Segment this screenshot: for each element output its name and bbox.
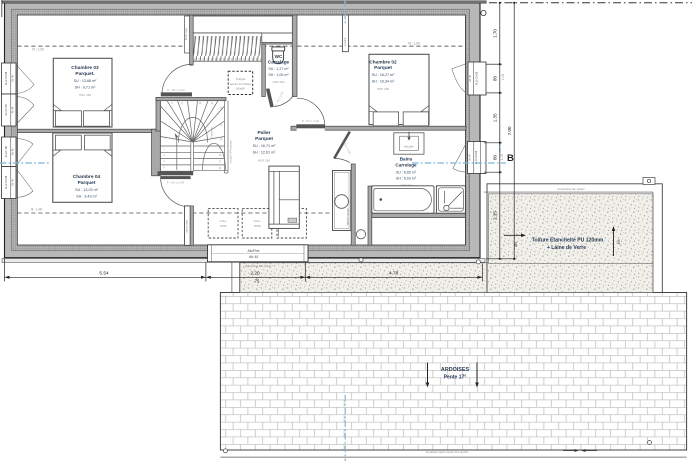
svg-text:Parquet: Parquet — [255, 136, 273, 142]
svg-text:SU : 16,71 m²: SU : 16,71 m² — [253, 144, 277, 148]
svg-text:16 marches: 16 marches — [211, 126, 214, 140]
svg-text:75: 75 — [255, 279, 260, 284]
svg-text:B: B — [507, 153, 514, 164]
svg-text:7.00: 7.00 — [507, 126, 512, 135]
svg-text:2.20: 2.20 — [250, 270, 260, 276]
svg-text:1.05: 1.05 — [500, 154, 504, 161]
svg-text:5.54: 5.54 — [99, 270, 109, 276]
svg-text:Alt: 46: Alt: 46 — [11, 148, 14, 155]
svg-text:ALU CH 06: ALU CH 06 — [4, 175, 8, 189]
svg-text:Chambre 03: Chambre 03 — [71, 65, 99, 71]
svg-text:SU : 6,65 m²: SU : 6,65 m² — [396, 170, 417, 174]
svg-text:Couvertine alu quartz: Couvertine alu quartz — [557, 187, 585, 191]
svg-text:Meuble: Meuble — [404, 145, 414, 149]
svg-text:HSP 260: HSP 260 — [79, 93, 92, 97]
svg-text:ALU F 06: ALU F 06 — [4, 104, 8, 116]
svg-text:80: 80 — [493, 76, 498, 82]
svg-text:SH : 10,34 m²: SH : 10,34 m² — [372, 80, 396, 84]
svg-text:1.05: 1.05 — [501, 74, 505, 81]
svg-text:Alt: 40: Alt: 40 — [249, 255, 259, 259]
svg-text:Vélux: Vélux — [253, 219, 261, 223]
svg-text:SU : 16,27 m²: SU : 16,27 m² — [372, 73, 396, 77]
svg-text:Porte coul.: Porte coul. — [184, 28, 188, 41]
svg-text:Trappe: Trappe — [236, 77, 246, 81]
svg-text:ht : 1,90: ht : 1,90 — [408, 42, 420, 46]
svg-text:Chambre 02: Chambre 02 — [369, 59, 397, 65]
svg-text:ALU CH 05: ALU CH 05 — [475, 71, 479, 85]
svg-text:Parquet.: Parquet. — [75, 71, 94, 77]
svg-text:80: 80 — [493, 155, 498, 161]
svg-text:60x60: 60x60 — [236, 87, 245, 91]
svg-text:Parquet: Parquet — [78, 180, 96, 186]
svg-text:ARDOISES: ARDOISES — [441, 367, 470, 373]
svg-text:Meuble vasque: Meuble vasque — [346, 208, 350, 226]
svg-text:HSP 260: HSP 260 — [377, 87, 390, 91]
svg-text:4.78: 4.78 — [389, 270, 399, 276]
svg-text:SU : 1,27 m²: SU : 1,27 m² — [268, 67, 289, 71]
svg-text:Alt: 46: Alt: 46 — [11, 75, 14, 82]
svg-text:Pente 17°: Pente 17° — [444, 375, 467, 381]
svg-text:HSP 260: HSP 260 — [258, 159, 271, 163]
svg-text:Conduit: Conduit — [344, 37, 347, 46]
svg-text:Alu/Fixe: Alu/Fixe — [248, 249, 260, 253]
svg-text:1%: 1% — [617, 239, 621, 245]
svg-text:ht : 1,90: ht : 1,90 — [32, 48, 44, 52]
svg-text:Alt: 46: Alt: 46 — [469, 154, 472, 161]
svg-text:P : 83 x 2,04: P : 83 x 2,04 — [302, 119, 320, 123]
svg-text:78/98: 78/98 — [219, 224, 227, 228]
svg-text:78/98: 78/98 — [253, 224, 261, 228]
svg-text:3%: 3% — [514, 241, 518, 247]
svg-text:Vélux: Vélux — [219, 219, 227, 223]
svg-text:HSP 260: HSP 260 — [273, 80, 285, 84]
svg-text:Couvertine alu quartz: Couvertine alu quartz — [245, 264, 272, 268]
svg-text:Carrelage: Carrelage — [268, 60, 290, 65]
svg-text:Alt: 46: Alt: 46 — [11, 106, 14, 113]
svg-text:WC: WC — [275, 54, 283, 59]
svg-text:Chambre 04: Chambre 04 — [73, 174, 101, 180]
svg-text:Escalier 2/4 tournant: Escalier 2/4 tournant — [230, 140, 233, 163]
svg-text:+ Laine de Verre: + Laine de Verre — [547, 245, 586, 251]
svg-text:SU : 13,03 m²: SU : 13,03 m² — [75, 188, 99, 192]
svg-text:SH : 9,71 m²: SH : 9,71 m² — [75, 86, 96, 90]
svg-text:2.35: 2.35 — [493, 211, 498, 220]
svg-text:SH : 12,61 m²: SH : 12,61 m² — [253, 151, 277, 155]
svg-text:Gouttière demi-ronde zinc quar: Gouttière demi-ronde zinc quartz — [426, 450, 469, 454]
svg-text:P : 83 x 2,04: P : 83 x 2,04 — [167, 181, 185, 185]
svg-text:ht : 1,40: ht : 1,40 — [31, 208, 43, 212]
svg-text:Toiture Etancheité PU 120mm: Toiture Etancheité PU 120mm — [532, 238, 604, 244]
svg-text:1.70: 1.70 — [493, 29, 498, 38]
svg-text:SH : 1,05 m²: SH : 1,05 m² — [268, 73, 289, 77]
svg-text:Bains: Bains — [400, 157, 413, 162]
svg-text:SH : 9,43 m²: SH : 9,43 m² — [76, 194, 97, 198]
svg-text:Alt: 46: Alt: 46 — [11, 179, 14, 186]
svg-text:ALU CH 05: ALU CH 05 — [474, 150, 478, 164]
svg-text:ALU F 06: ALU F 06 — [4, 146, 8, 158]
svg-text:P : 83 x 2,04: P : 83 x 2,04 — [167, 88, 185, 92]
svg-text:accès Combles: accès Combles — [230, 82, 252, 86]
svg-text:Parquet: Parquet — [374, 65, 392, 71]
svg-text:SU : 13,68 m²: SU : 13,68 m² — [74, 79, 98, 83]
svg-text:ALU CH 06: ALU CH 06 — [4, 71, 8, 85]
svg-text:1.35: 1.35 — [493, 113, 498, 122]
svg-text:garde corps: garde corps — [185, 219, 188, 232]
svg-text:Palier: Palier — [257, 130, 270, 136]
svg-text:SH : 6,03 m²: SH : 6,03 m² — [396, 176, 417, 180]
svg-text:Alt: 46: Alt: 46 — [469, 75, 472, 82]
